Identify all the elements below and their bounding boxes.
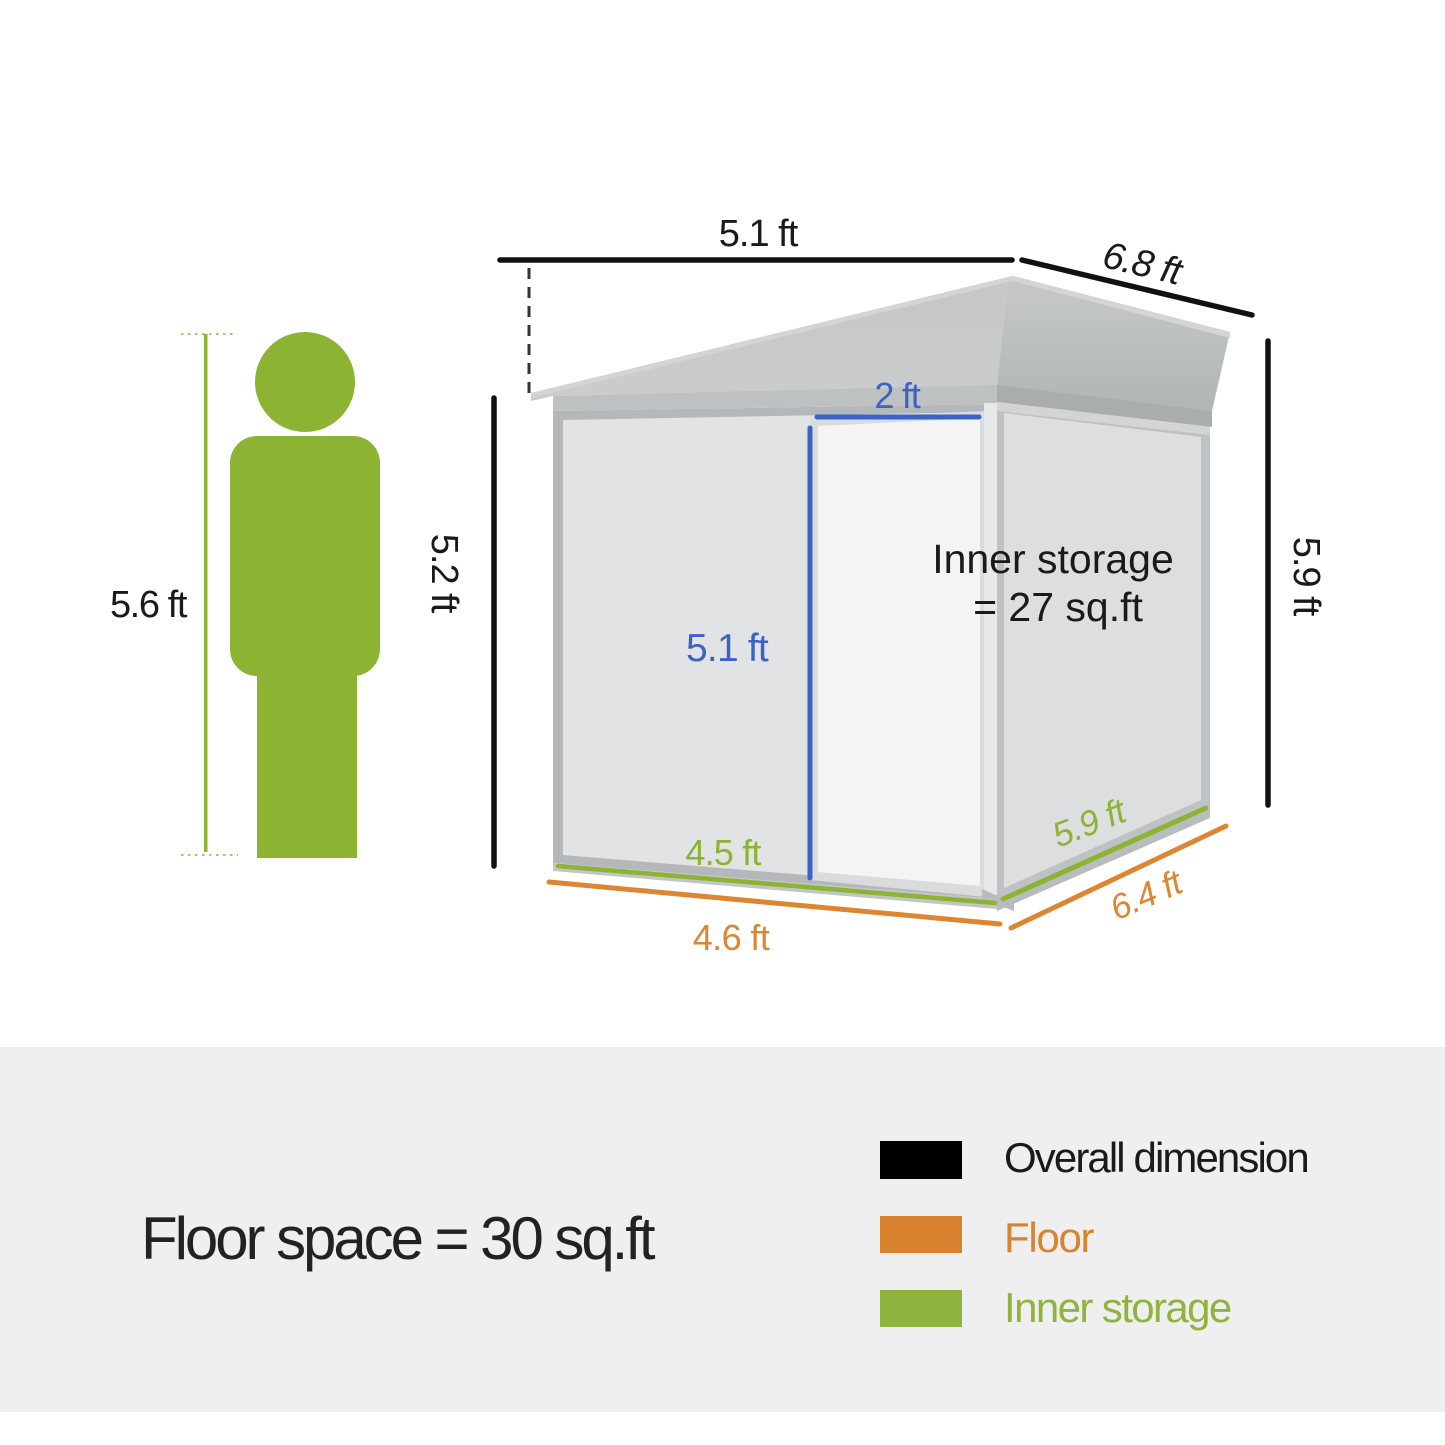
svg-text:5.1 ft: 5.1 ft — [686, 627, 769, 670]
svg-text:Inner storage: Inner storage — [1004, 1284, 1231, 1331]
svg-text:5.1 ft: 5.1 ft — [719, 213, 799, 255]
svg-text:5.2 ft: 5.2 ft — [423, 534, 465, 614]
svg-text:5.9 ft: 5.9 ft — [1285, 537, 1327, 617]
svg-text:4.6 ft: 4.6 ft — [693, 917, 770, 958]
svg-text:5.6 ft: 5.6 ft — [110, 584, 188, 626]
svg-text:Overall dimension: Overall dimension — [1004, 1134, 1308, 1181]
svg-text:4.5 ft: 4.5 ft — [685, 832, 761, 873]
svg-text:Floor space = 30 sq.ft: Floor space = 30 sq.ft — [141, 1205, 656, 1272]
svg-text:Floor: Floor — [1004, 1214, 1095, 1261]
svg-text:Inner storage: Inner storage — [932, 536, 1174, 582]
svg-text:= 27 sq.ft: = 27 sq.ft — [973, 584, 1143, 630]
svg-text:2 ft: 2 ft — [874, 375, 920, 416]
